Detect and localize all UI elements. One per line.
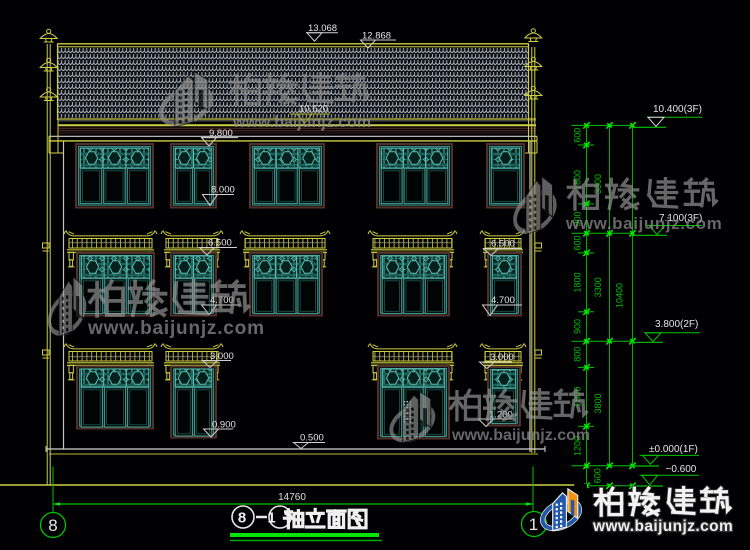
svg-text:1800: 1800 (573, 272, 583, 292)
svg-text:8.000: 8.000 (211, 185, 235, 196)
svg-text:3800: 3800 (593, 393, 603, 413)
svg-text:4.700: 4.700 (491, 295, 515, 306)
svg-text:www.baijunjz.com: www.baijunjz.com (87, 318, 265, 339)
svg-text:14760: 14760 (278, 492, 306, 503)
svg-text:±0.000(1F): ±0.000(1F) (649, 444, 698, 455)
svg-text:3300: 3300 (593, 277, 603, 297)
svg-text:8: 8 (238, 510, 246, 527)
svg-text:www.baijunjz.com: www.baijunjz.com (232, 114, 371, 131)
svg-text:800: 800 (573, 347, 583, 362)
svg-text:600: 600 (573, 235, 583, 250)
svg-text:10.620: 10.620 (299, 104, 328, 115)
svg-text:1: 1 (529, 515, 538, 534)
svg-text:10400: 10400 (615, 283, 625, 308)
svg-text:www.baijunjz.com: www.baijunjz.com (451, 427, 590, 444)
svg-text:3.000: 3.000 (490, 352, 514, 363)
svg-text:6.500: 6.500 (208, 238, 232, 249)
svg-text:−0.600: −0.600 (666, 464, 697, 475)
svg-text:1: 1 (267, 510, 275, 527)
svg-text:10.400(3F): 10.400(3F) (653, 104, 702, 115)
svg-text:0.500: 0.500 (300, 433, 324, 444)
svg-text:6.500: 6.500 (491, 239, 515, 250)
svg-text:900: 900 (573, 319, 583, 334)
svg-text:600: 600 (573, 128, 583, 143)
svg-text:www.baijunjz.com: www.baijunjz.com (592, 518, 733, 535)
svg-text:www.baijunjz.com: www.baijunjz.com (565, 214, 722, 233)
svg-text:3.800(2F): 3.800(2F) (655, 319, 698, 330)
svg-text:8: 8 (48, 516, 57, 535)
svg-text:600: 600 (593, 468, 603, 483)
